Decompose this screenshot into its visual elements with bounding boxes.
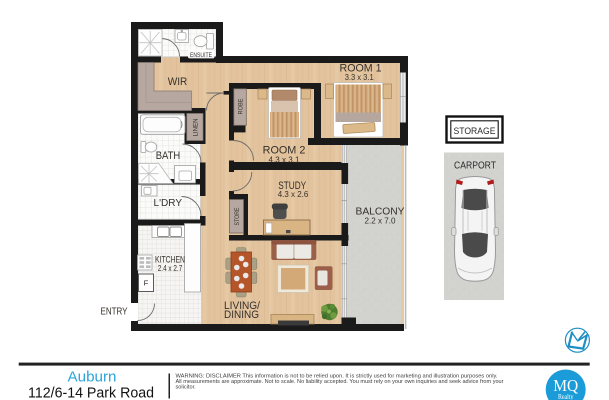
svg-text:F: F bbox=[144, 279, 149, 288]
svg-text:STORAGE: STORAGE bbox=[454, 126, 496, 137]
svg-text:BATH: BATH bbox=[156, 150, 181, 162]
svg-text:DINING: DINING bbox=[224, 309, 259, 321]
svg-text:WIR: WIR bbox=[168, 76, 188, 88]
svg-text:All measurements are approxima: All measurements are approximate. Not to… bbox=[176, 379, 504, 385]
svg-text:LINEN: LINEN bbox=[193, 118, 200, 136]
svg-text:solicitor.: solicitor. bbox=[176, 385, 197, 391]
svg-text:4.3 x 2.6: 4.3 x 2.6 bbox=[278, 190, 309, 199]
svg-text:2.2 x 7.0: 2.2 x 7.0 bbox=[365, 217, 397, 226]
svg-text:KITCHEN: KITCHEN bbox=[155, 255, 185, 265]
svg-text:2.4 x 2.7: 2.4 x 2.7 bbox=[158, 264, 183, 273]
svg-text:ENTRY: ENTRY bbox=[101, 307, 128, 318]
svg-text:ENSUITE: ENSUITE bbox=[190, 52, 212, 59]
svg-text:4.3 x 3.1: 4.3 x 3.1 bbox=[269, 155, 300, 164]
svg-text:CARPORT: CARPORT bbox=[454, 161, 496, 172]
svg-text:Realty: Realty bbox=[558, 393, 574, 400]
svg-text:112/6-14 Park Road: 112/6-14 Park Road bbox=[28, 385, 154, 400]
svg-text:STORE: STORE bbox=[234, 207, 241, 225]
svg-text:Auburn: Auburn bbox=[68, 369, 117, 386]
svg-text:3.3 x 3.1: 3.3 x 3.1 bbox=[345, 73, 374, 82]
svg-text:L'DRY: L'DRY bbox=[154, 198, 183, 209]
svg-text:ROBE: ROBE bbox=[237, 98, 244, 115]
